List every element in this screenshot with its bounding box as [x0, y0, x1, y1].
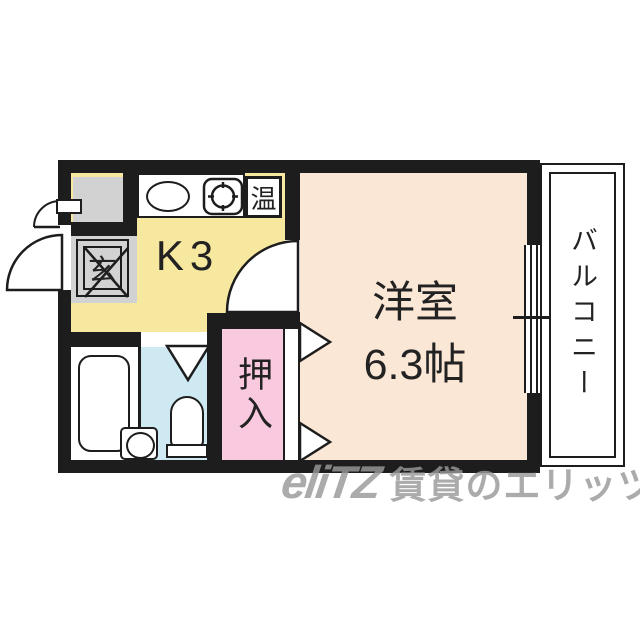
toilet-base-icon — [166, 444, 208, 458]
kitchen-sink-icon — [146, 181, 190, 212]
floorplan-canvas: { "colors": { "wall": "#1d1d1d", "kitche… — [0, 0, 640, 640]
main-room-size: 6.3帖 — [310, 334, 520, 396]
water-heater-box: 温 — [245, 176, 282, 218]
window-frame-line — [524, 245, 526, 393]
entrance-door-leaf — [56, 199, 82, 214]
watermark-text: 賃貸のエリッツ — [389, 455, 640, 509]
main-room-label: 洋室 6.3帖 — [310, 272, 520, 397]
washbasin-bowl-icon — [126, 432, 155, 459]
main-room-name: 洋室 — [310, 272, 520, 334]
window-frame-line — [530, 245, 532, 393]
balcony-area: バルコニー — [540, 163, 625, 467]
watermark-logo: eliTZ — [278, 455, 383, 509]
wall-pipe-space-right — [123, 160, 137, 222]
watermark: eliTZ 賃貸のエリッツ — [282, 455, 640, 509]
washroom-door-icon — [165, 345, 211, 383]
water-heater-label: 温 — [250, 179, 276, 216]
closet-label: 押入 — [222, 334, 283, 456]
stove-burner-icon — [202, 177, 244, 216]
wall-bath-top — [58, 332, 141, 347]
wall-closet-left — [207, 313, 222, 460]
kitchen-label: K3 — [120, 232, 255, 280]
balcony-label: バルコニー — [563, 226, 602, 404]
window-frame-line — [536, 245, 538, 393]
toilet-icon — [170, 396, 204, 448]
balcony-floor: バルコニー — [549, 172, 616, 458]
washbasin-icon — [120, 427, 158, 460]
